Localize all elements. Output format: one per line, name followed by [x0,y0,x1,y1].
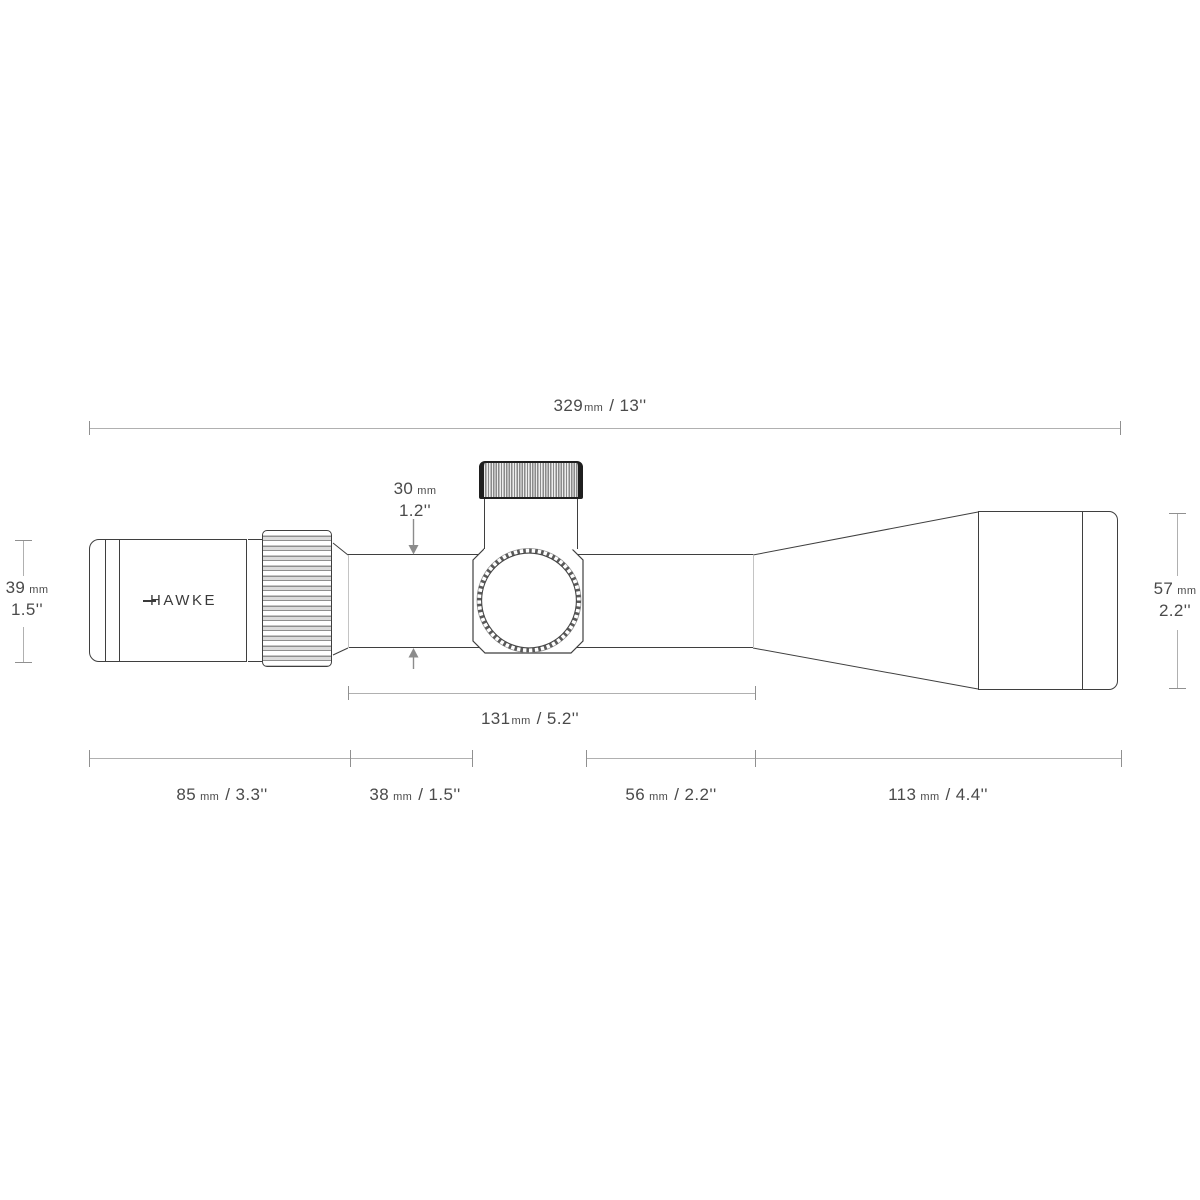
dim-total-value: 329 [554,396,584,415]
dim-bottom-left-line [89,758,473,759]
dim-ocular-line-bottom [23,627,24,662]
objective-taper [753,512,978,689]
dim-objective-diameter-label: 57mm 2.2'' [1144,579,1200,620]
dim-bottom-tick-5 [755,750,756,767]
dim-objective-line-top [1177,513,1178,576]
dim-ocular-cap-top [15,540,32,541]
eyepiece-ring-connector [248,539,263,662]
dim-tube-diameter-label: 30mm 1.2'' [355,479,475,520]
dim-ocular-diameter-label: 39mm 1.5'' [0,578,57,619]
arrow-up-icon [409,648,419,658]
eyepiece-ring-line-1 [105,540,106,661]
hawke-logo: HAWKE [150,593,230,609]
dim-total-tick-right [1120,421,1121,435]
dim-objective-cap-top [1169,513,1186,514]
objective-bell-ring-line [1082,512,1083,689]
dim-bottom-tick-3 [472,750,473,767]
dim-mid-tick-right [755,686,756,700]
dim-bottom-tick-2 [350,750,351,767]
dim-bottom-right-line [586,758,1122,759]
objective-bell [978,511,1118,690]
zoom-magnification-ring [262,530,332,667]
dim-front-tube-label: 38mm/ 1.5'' [315,785,515,807]
rear-taper [333,543,348,655]
riflescope-dimension-diagram: HAWKE [0,0,1200,1200]
dim-total-tick-left [89,421,90,435]
dim-mid-tick-left [348,686,349,700]
dim-ocular-cap-bottom [15,662,32,663]
dim-bottom-tick-1 [89,750,90,767]
eyepiece-ring-line-2 [119,540,120,661]
elevation-turret-stem [484,499,578,550]
dim-rear-tube-label: 56mm/ 2.2'' [571,785,771,807]
dim-mid-label: 131mm/ 5.2'' [380,709,680,731]
dim-objective-cap-bottom [1169,688,1186,689]
dim-total-line [89,428,1121,429]
dim-ocular-line-top [23,540,24,576]
dim-objective-length-label: 113mm/ 4.4'' [838,785,1038,807]
dim-bottom-tick-6 [1121,750,1122,767]
main-tube [348,554,753,648]
elevation-turret-cap [479,461,583,499]
dim-total-label: 329mm/ 13'' [100,396,1100,418]
dim-bottom-tick-4 [586,750,587,767]
dim-objective-line-bottom [1177,630,1178,688]
dim-eyepiece-length-label: 85mm/ 3.3'' [122,785,322,807]
dim-mid-line [348,693,756,694]
